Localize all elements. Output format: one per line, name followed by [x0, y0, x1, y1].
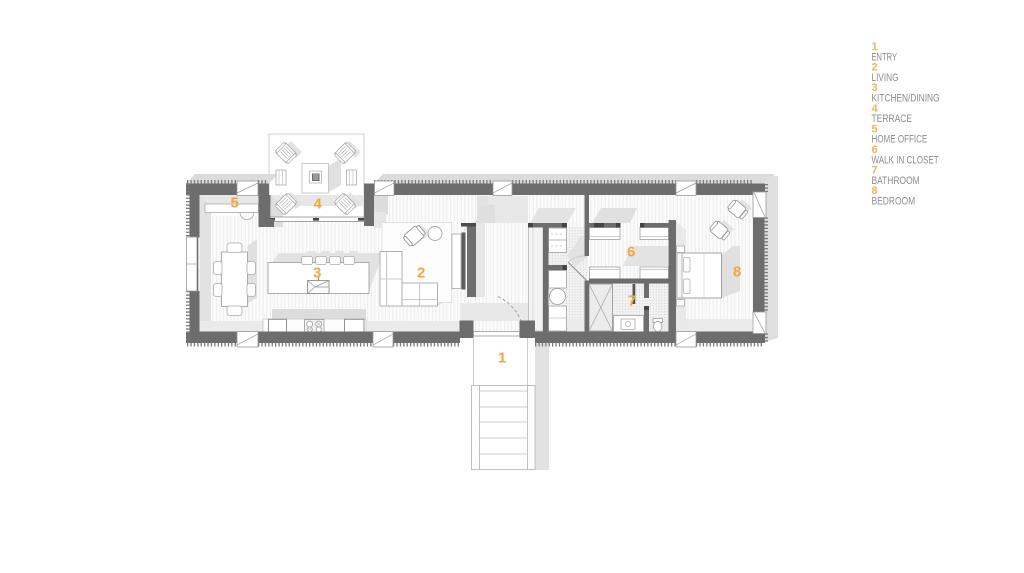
svg-text:2: 2	[417, 265, 425, 282]
svg-text:5: 5	[231, 195, 239, 212]
svg-text:BATHROOM: BATHROOM	[872, 175, 920, 187]
svg-text:7: 7	[628, 293, 636, 310]
svg-text:3: 3	[313, 265, 321, 282]
svg-text:HOME OFFICE: HOME OFFICE	[872, 134, 928, 146]
svg-text:4: 4	[314, 196, 323, 213]
svg-text:WALK IN CLOSET: WALK IN CLOSET	[872, 154, 939, 166]
svg-text:1: 1	[498, 350, 506, 367]
svg-text:8: 8	[733, 264, 741, 281]
svg-text:BEDROOM: BEDROOM	[872, 196, 916, 208]
svg-text:6: 6	[627, 244, 635, 261]
svg-text:KITCHEN/DINING: KITCHEN/DINING	[872, 93, 940, 105]
